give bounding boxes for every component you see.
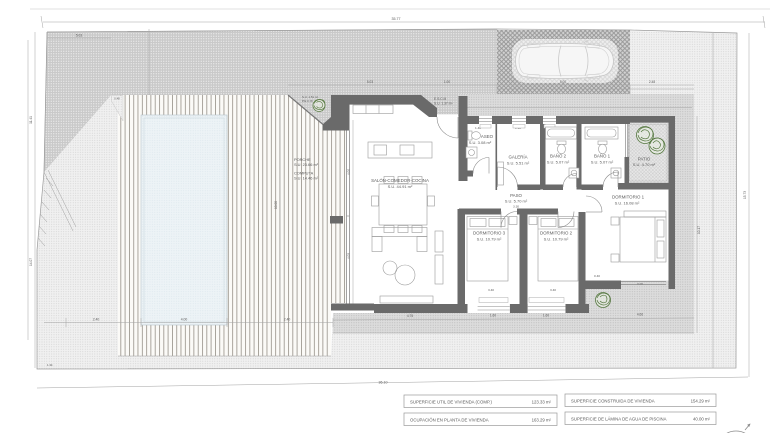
- svg-text:BAÑO 2: BAÑO 2: [550, 154, 567, 159]
- svg-text:15.73: 15.73: [743, 191, 747, 199]
- svg-text:S.U. 23.66 m²: S.U. 23.66 m²: [294, 162, 319, 167]
- svg-text:10.00: 10.00: [274, 201, 278, 209]
- svg-text:11.41: 11.41: [29, 116, 33, 124]
- svg-text:ASEO: ASEO: [481, 134, 494, 139]
- svg-text:2.40: 2.40: [284, 318, 291, 322]
- svg-text:S.U. 5.51 m²: S.U. 5.51 m²: [507, 161, 530, 166]
- svg-text:S.U. 44.91 m²: S.U. 44.91 m²: [388, 184, 413, 189]
- svg-text:4.00: 4.00: [347, 169, 351, 175]
- svg-text:4.75: 4.75: [407, 314, 413, 318]
- svg-text:S.U. 10.79 m²: S.U. 10.79 m²: [544, 237, 569, 242]
- svg-text:4.66: 4.66: [637, 313, 643, 317]
- svg-text:36.10: 36.10: [379, 381, 388, 385]
- svg-text:DORMITORIO 3: DORMITORIO 3: [473, 231, 506, 236]
- svg-text:PASO: PASO: [510, 193, 522, 198]
- svg-text:35.77: 35.77: [392, 17, 401, 21]
- svg-text:P.E.C.III: P.E.C.III: [302, 99, 313, 103]
- svg-text:SUPERFICIE UTIL DE VIVIENDA (: SUPERFICIE UTIL DE VIVIENDA (COMP.): [410, 400, 492, 405]
- svg-text:GALERÍA: GALERÍA: [508, 155, 527, 160]
- svg-text:S.U. 16.08 m²: S.U. 16.08 m²: [615, 201, 640, 206]
- svg-text:DORMITORIO 2: DORMITORIO 2: [540, 231, 573, 236]
- svg-text:163.29 m²: 163.29 m²: [532, 418, 552, 423]
- svg-text:DORMITORIO 1: DORMITORIO 1: [612, 195, 645, 200]
- svg-text:154.29 m²: 154.29 m²: [691, 399, 711, 404]
- svg-text:1.00: 1.00: [444, 80, 450, 84]
- svg-text:S.U. 5.07 m²: S.U. 5.07 m²: [547, 160, 570, 165]
- svg-text:2.48: 2.48: [649, 80, 655, 84]
- svg-text:S.U. 5.70 m²: S.U. 5.70 m²: [505, 199, 528, 204]
- svg-text:3.40: 3.40: [488, 288, 494, 292]
- svg-text:10.17: 10.17: [697, 226, 701, 234]
- svg-text:S.U. 3.08 m²: S.U. 3.08 m²: [469, 140, 492, 145]
- svg-text:OCUPACIÓN EN PLANTA DE VIVIEND: OCUPACIÓN EN PLANTA DE VIVIENDA: [410, 418, 489, 423]
- svg-text:1.60: 1.60: [543, 314, 549, 318]
- svg-text:1.34: 1.34: [47, 363, 53, 367]
- svg-text:4.05: 4.05: [347, 253, 351, 259]
- svg-text:14.07: 14.07: [29, 258, 33, 266]
- svg-text:3.00: 3.00: [637, 282, 643, 286]
- svg-text:SUPERFICIE DE LÁMINA DE AGUA D: SUPERFICIE DE LÁMINA DE AGUA DE PISCINA: [571, 417, 667, 422]
- svg-text:3.40: 3.40: [550, 288, 556, 292]
- svg-text:PATIO: PATIO: [638, 157, 651, 162]
- svg-text:2.40: 2.40: [93, 318, 100, 322]
- svg-text:SUPERFICIE CONSTRUIDA DE VIVIE: SUPERFICIE CONSTRUIDA DE VIVIENDA: [571, 399, 655, 404]
- svg-text:5.00: 5.00: [560, 80, 566, 84]
- svg-text:S.U. 5.07 m²: S.U. 5.07 m²: [591, 160, 614, 165]
- svg-text:3.30: 3.30: [513, 205, 519, 209]
- svg-text:4.00: 4.00: [181, 318, 188, 322]
- svg-text:40.00 m²: 40.00 m²: [693, 417, 711, 422]
- svg-text:1.60: 1.60: [490, 314, 496, 318]
- svg-text:123.33 m²: 123.33 m²: [532, 400, 552, 405]
- svg-text:S.U. 1.37 m²: S.U. 1.37 m²: [434, 102, 453, 106]
- svg-text:E.S.C.III: E.S.C.III: [434, 97, 446, 101]
- svg-text:SALÓN-COMEDOR-COCINA: SALÓN-COMEDOR-COCINA: [371, 178, 429, 183]
- svg-text:BAÑO 1: BAÑO 1: [594, 154, 611, 159]
- svg-text:S.U. 14.46 m²: S.U. 14.46 m²: [294, 176, 319, 181]
- svg-text:S.U. 4.70 m²: S.U. 4.70 m²: [633, 162, 656, 167]
- svg-text:5.03: 5.03: [76, 34, 82, 38]
- svg-text:S.U. 10.79 m²: S.U. 10.79 m²: [477, 237, 502, 242]
- svg-text:5.03: 5.03: [367, 80, 373, 84]
- svg-text:0.48: 0.48: [114, 97, 120, 101]
- svg-text:0.40: 0.40: [594, 274, 600, 278]
